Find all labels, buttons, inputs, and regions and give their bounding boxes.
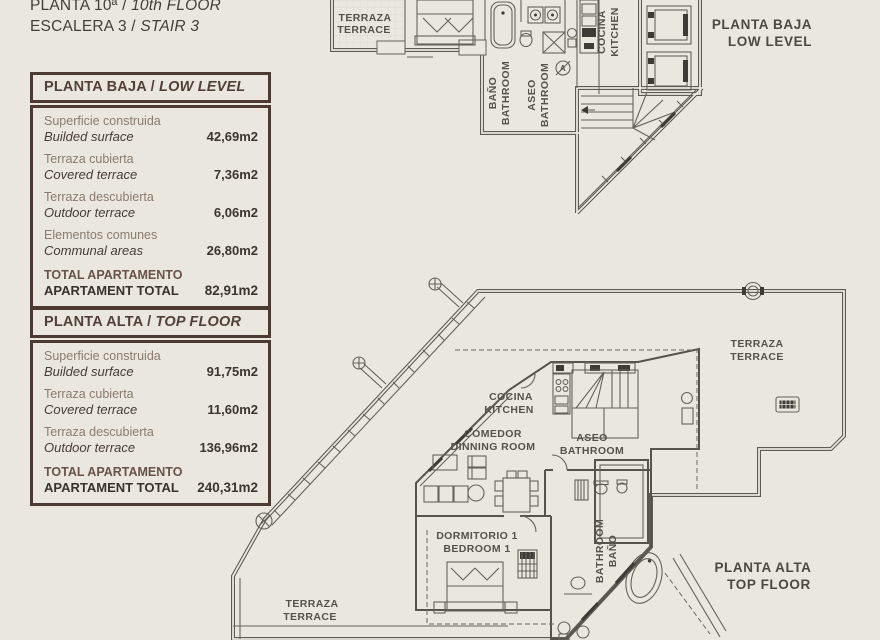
aseo-label-en: BATHROOM [560,445,624,457]
table-row: Superficie construidaBuilded surface42,6… [44,114,258,145]
terrace-left-label-en: TERRACE [283,611,337,623]
kitchen-label-en: KITCHEN [484,404,533,416]
row-label-es: Superficie construida [44,349,161,364]
row-value: 26,80m2 [207,243,258,259]
row-value: 7,36m2 [214,167,258,183]
low-level-table-title: PLANTA BAJA / LOW LEVEL [30,72,271,103]
row-label-en: Covered terrace [44,167,137,183]
bedroom-label-en: BEDROOM 1 [443,543,510,555]
grill-icon [776,397,799,412]
floor-title: PLANTA 10ª / 10th FLOOR [30,0,221,16]
top-floor-plan-title-es: PLANTA ALTA [714,560,811,575]
low-level-table: PLANTA BAJA / LOW LEVEL Superficie const… [30,72,271,309]
low-level-plan-title-es: PLANTA BAJA [712,17,812,32]
row-label-es: Terraza cubierta [44,387,137,402]
low-level-plan-title-en: LOW LEVEL [728,34,812,49]
terrace-right-label-es: TERRAZA [731,338,784,350]
table-row: Terraza descubiertaOutdoor terrace6,06m2 [44,190,258,221]
kitchen-label-es: COCINA [596,10,608,54]
row-label-en: Builded surface [44,364,161,380]
marker-letter: A [560,64,566,73]
stair-title: ESCALERA 3 / STAIR 3 [30,16,221,37]
total-label-en: APARTAMENT TOTAL [44,480,182,496]
terrace-label-en: TERRACE [337,24,391,36]
toilet-icon [520,31,532,47]
terrace-edge [233,578,508,639]
bed-icon [415,0,475,45]
elevator-icon [647,6,691,44]
sofa-icon [424,455,486,502]
top-floor-plan: TERRAZA TERRACE COCINA KITCHEN COMEDOR D… [220,278,880,640]
row-label-en: Builded surface [44,129,161,145]
total-label-es: TOTAL APARTAMENTO [44,465,182,480]
row-label-es: Terraza descubierta [44,425,154,440]
dining-label-en: DINNING ROOM [451,441,536,453]
row-label-en: Outdoor terrace [44,440,154,456]
kitchen-label-es: COCINA [489,391,533,403]
bath-label-es: BAÑO [606,535,619,568]
wardrobe-icon [518,550,537,578]
stairs-icon [579,88,696,207]
dining-label-es: COMEDOR [464,428,522,440]
row-label-es: Terraza cubierta [44,152,137,167]
row-value: 6,06m2 [214,205,258,221]
title-en: LOW LEVEL [159,79,245,95]
aseo-label-en: BATHROOM [539,63,551,127]
elevator-icon [647,52,691,90]
terrace-left-label-es: TERRAZA [286,598,339,610]
row-label-es: Superficie construida [44,114,161,129]
stair-title-en: STAIR 3 [140,18,199,35]
terrace-right-label-en: TERRACE [730,351,784,363]
title-es: PLANTA BAJA / [44,79,155,95]
column-x-icon [256,513,272,529]
floorplan-sheet: PLANTA 10ª / 10th FLOOR ESCALERA 3 / STA… [0,0,880,640]
sink-icon [528,7,560,23]
floor-title-en: 10th FLOOR [131,0,221,14]
stair-title-es: ESCALERA 3 / [30,18,136,35]
dining-table-icon [495,471,538,512]
floor-title-es: PLANTA 10ª / [30,0,127,14]
title-es: PLANTA ALTA / [44,314,151,330]
aseo-label-es: ASEO [576,432,607,444]
row-label-en: Communal areas [44,243,157,259]
section-marker-a: A [556,61,570,75]
top-floor-plan-title-en: TOP FLOOR [727,577,811,592]
row-label-es: Terraza descubierta [44,190,154,205]
bed-icon [434,562,517,613]
bath-label-es: BAÑO [486,77,499,110]
shower-icon [543,32,565,53]
kitchen-label-en: KITCHEN [609,7,621,56]
aseo-room [545,455,651,516]
row-label-es: Elementos comunes [44,228,157,243]
bedroom-label-es: DORMITORIO 1 [436,530,518,542]
sheet-header: PLANTA 10ª / 10th FLOOR ESCALERA 3 / STA… [30,0,221,37]
terrace-table-icon [682,393,694,425]
low-level-plan: A TERRAZA TERRACE BAÑO BATHROOM ASEO BAT… [325,0,880,240]
bathtub-icon [491,2,515,48]
total-label-es: TOTAL APARTAMENTO [44,268,182,283]
bath-label-en: BATHROOM [594,519,606,583]
footprint-dashed-line [427,350,710,634]
terrace-label-es: TERRAZA [339,12,392,24]
row-label-en: Outdoor terrace [44,205,154,221]
table-row: Elementos comunesCommunal areas26,80m2 [44,228,258,259]
bath-label-en: BATHROOM [500,61,512,125]
column-marker-icon [353,357,365,369]
column-marker-icon [429,278,441,290]
stairs-icon [572,370,638,438]
table-row: Terraza cubiertaCovered terrace7,36m2 [44,152,258,183]
row-label-en: Covered terrace [44,402,137,418]
basin-icon [568,29,577,48]
total-label-en: APARTAMENT TOTAL [44,283,182,299]
aseo-label-es: ASEO [526,79,538,110]
row-value: 42,69m2 [207,129,258,145]
kitchen-counter-icon [553,363,635,414]
